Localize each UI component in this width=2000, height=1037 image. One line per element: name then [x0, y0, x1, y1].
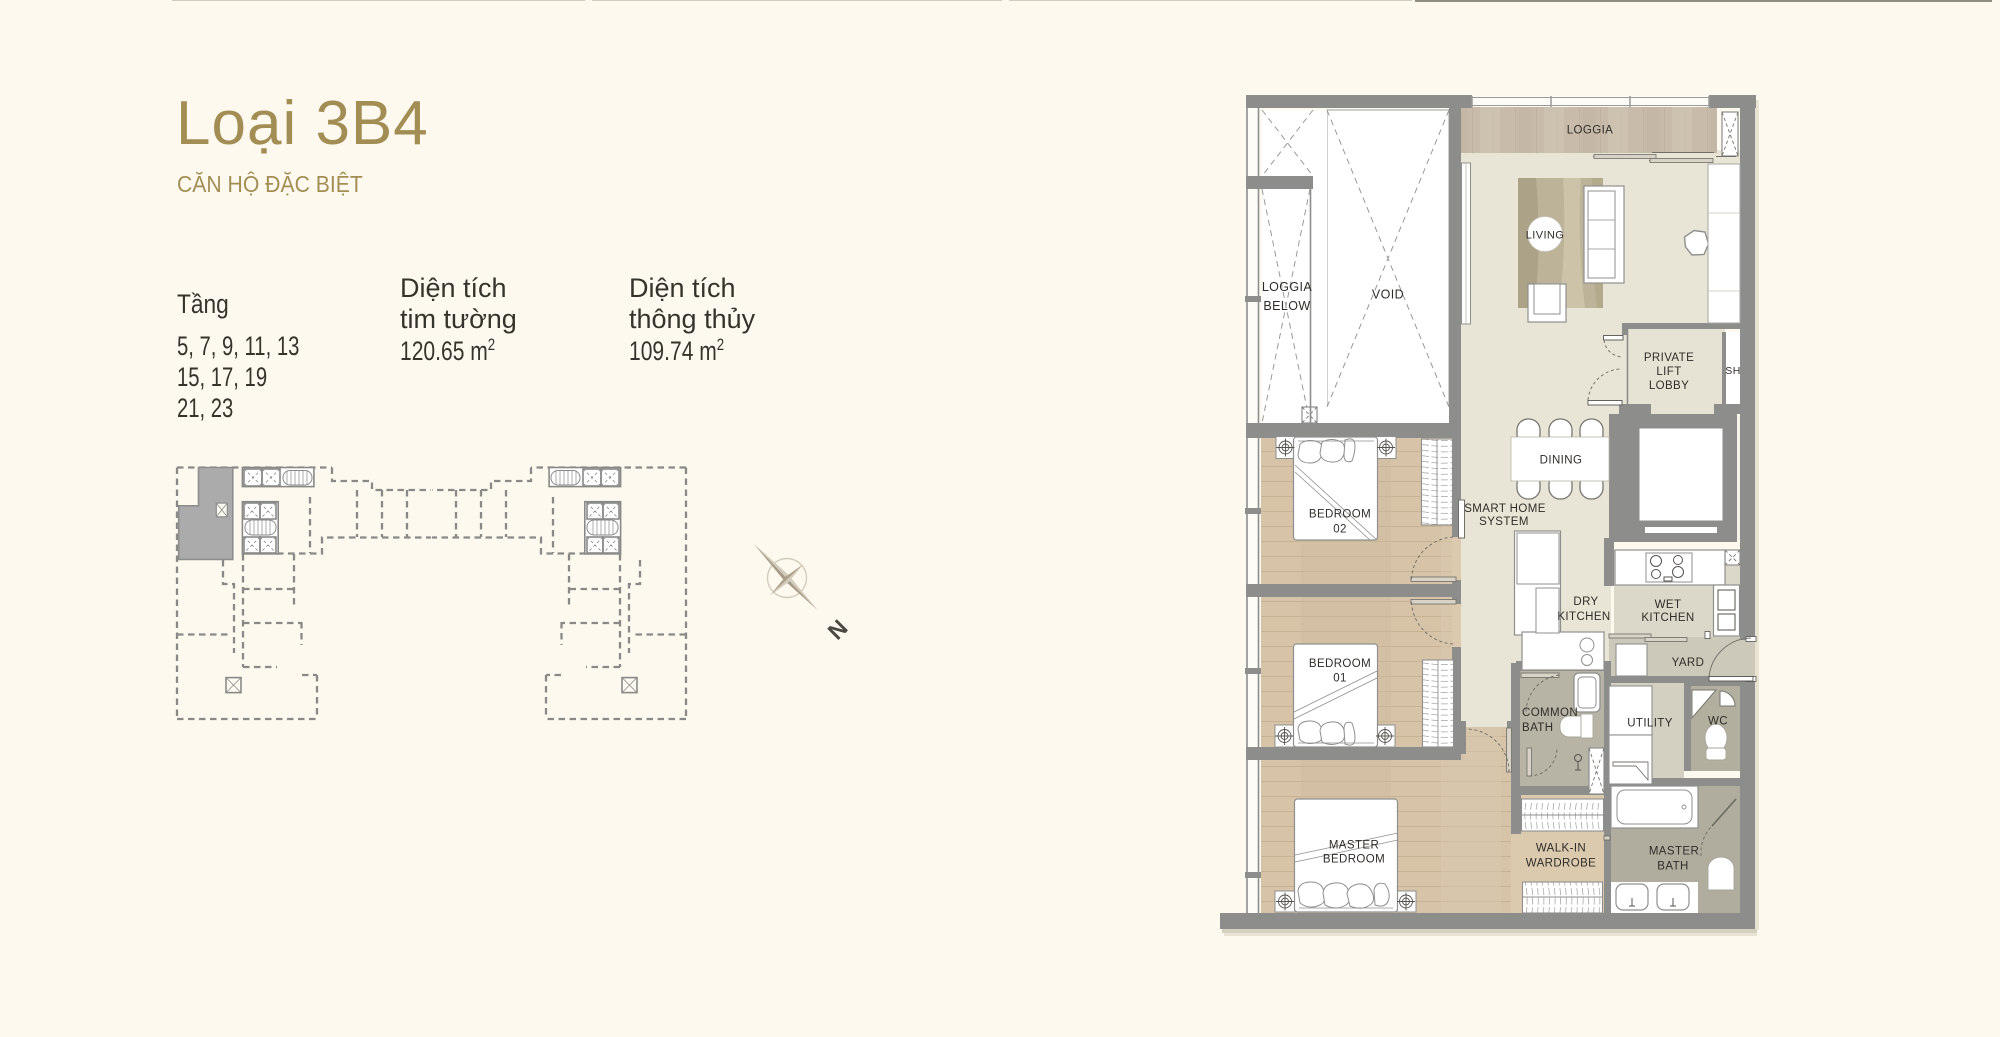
svg-text:02: 02: [1333, 524, 1347, 536]
svg-text:MASTER: MASTER: [1329, 840, 1379, 852]
svg-text:KITCHEN: KITCHEN: [1557, 611, 1610, 623]
svg-text:BATH: BATH: [1522, 722, 1553, 734]
svg-text:BELOW: BELOW: [1263, 299, 1310, 313]
svg-text:LOGGIA: LOGGIA: [1262, 280, 1313, 294]
svg-text:SYSTEM: SYSTEM: [1479, 516, 1529, 528]
svg-text:BATH: BATH: [1657, 861, 1688, 873]
svg-text:WET: WET: [1655, 599, 1682, 611]
svg-text:LOBBY: LOBBY: [1649, 380, 1689, 392]
svg-text:KITCHEN: KITCHEN: [1641, 612, 1694, 624]
svg-text:YARD: YARD: [1672, 657, 1705, 669]
svg-text:BEDROOM: BEDROOM: [1323, 854, 1385, 866]
svg-text:BEDROOM: BEDROOM: [1309, 509, 1371, 521]
svg-text:N: N: [823, 615, 853, 645]
svg-text:01: 01: [1333, 673, 1347, 685]
svg-text:COMMON: COMMON: [1522, 707, 1578, 719]
svg-text:SMART HOME: SMART HOME: [1464, 503, 1546, 515]
svg-text:VOID: VOID: [1372, 288, 1404, 302]
svg-text:DINING: DINING: [1540, 455, 1583, 467]
svg-text:WARDROBE: WARDROBE: [1526, 858, 1597, 870]
svg-text:BEDROOM: BEDROOM: [1309, 658, 1371, 670]
svg-text:WC: WC: [1708, 716, 1728, 728]
svg-text:LIVING: LIVING: [1526, 230, 1564, 242]
svg-text:PRIVATE: PRIVATE: [1644, 352, 1694, 364]
svg-text:DRY: DRY: [1573, 596, 1598, 608]
svg-text:LOGGIA: LOGGIA: [1567, 125, 1614, 137]
svg-text:WALK-IN: WALK-IN: [1536, 843, 1586, 855]
svg-text:LIFT: LIFT: [1656, 366, 1681, 378]
svg-text:UTILITY: UTILITY: [1627, 718, 1673, 730]
svg-text:SH: SH: [1725, 365, 1740, 377]
svg-text:MASTER: MASTER: [1649, 846, 1699, 858]
